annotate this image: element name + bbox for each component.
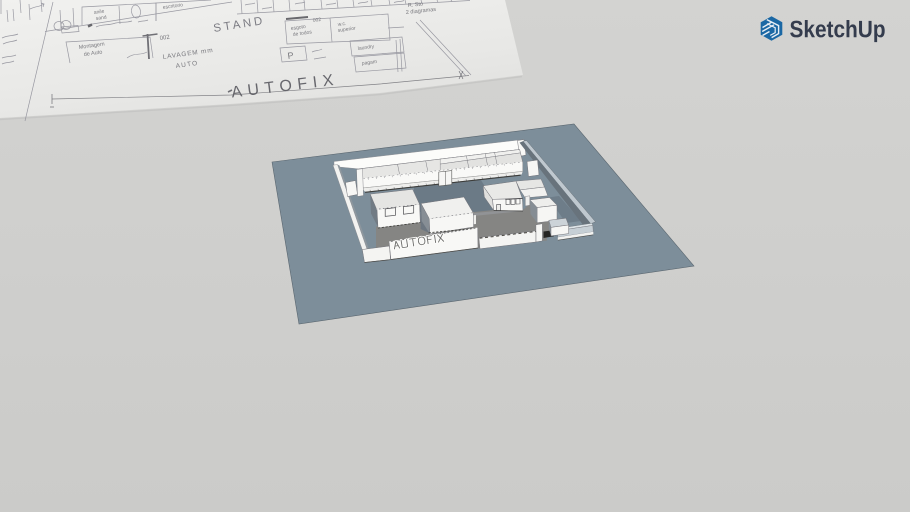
svg-text:002: 002 — [159, 34, 171, 42]
svg-text:002: 002 — [312, 17, 321, 24]
